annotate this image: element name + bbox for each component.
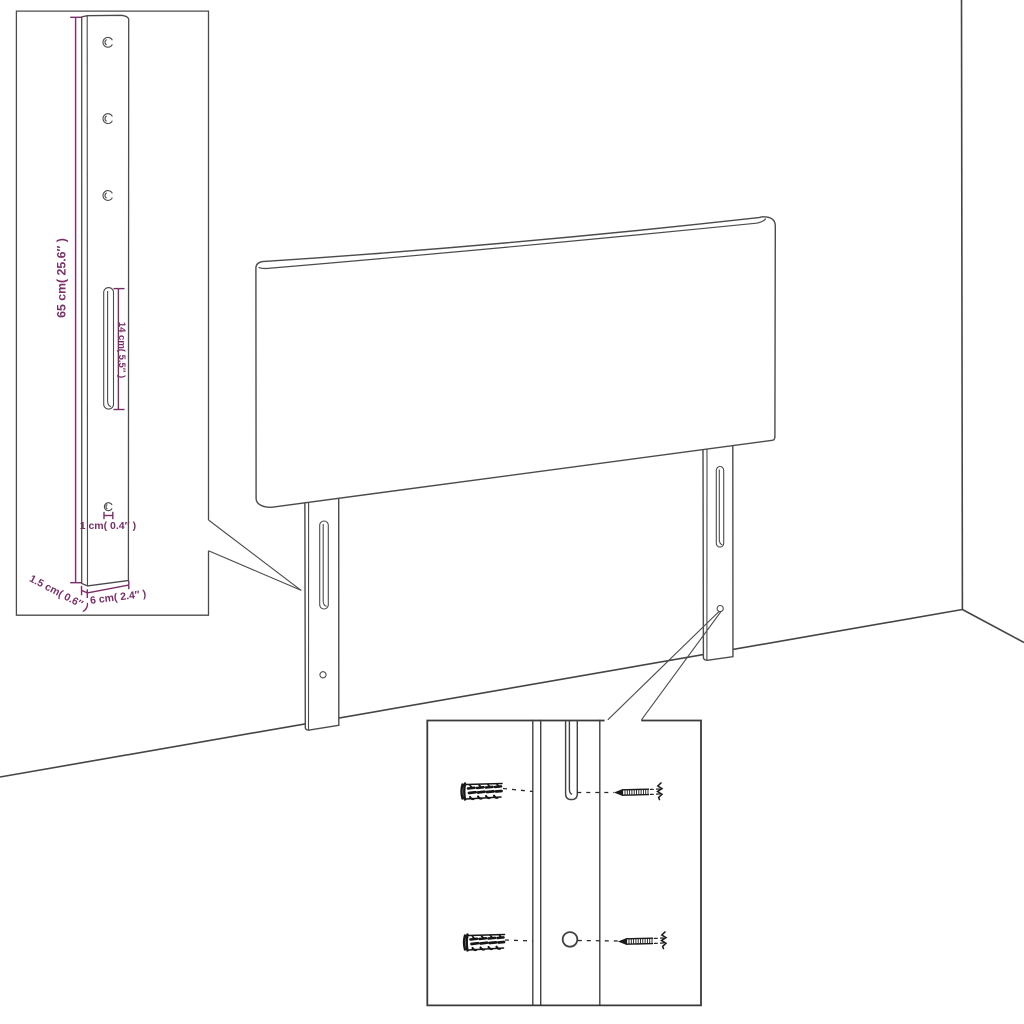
- svg-text:1 cm( 0.4″ ): 1 cm( 0.4″ ): [80, 520, 136, 532]
- svg-text:14 cm( 5.5″ ): 14 cm( 5.5″ ): [116, 322, 127, 378]
- svg-text:65 cm( 25.6″ ): 65 cm( 25.6″ ): [55, 238, 69, 318]
